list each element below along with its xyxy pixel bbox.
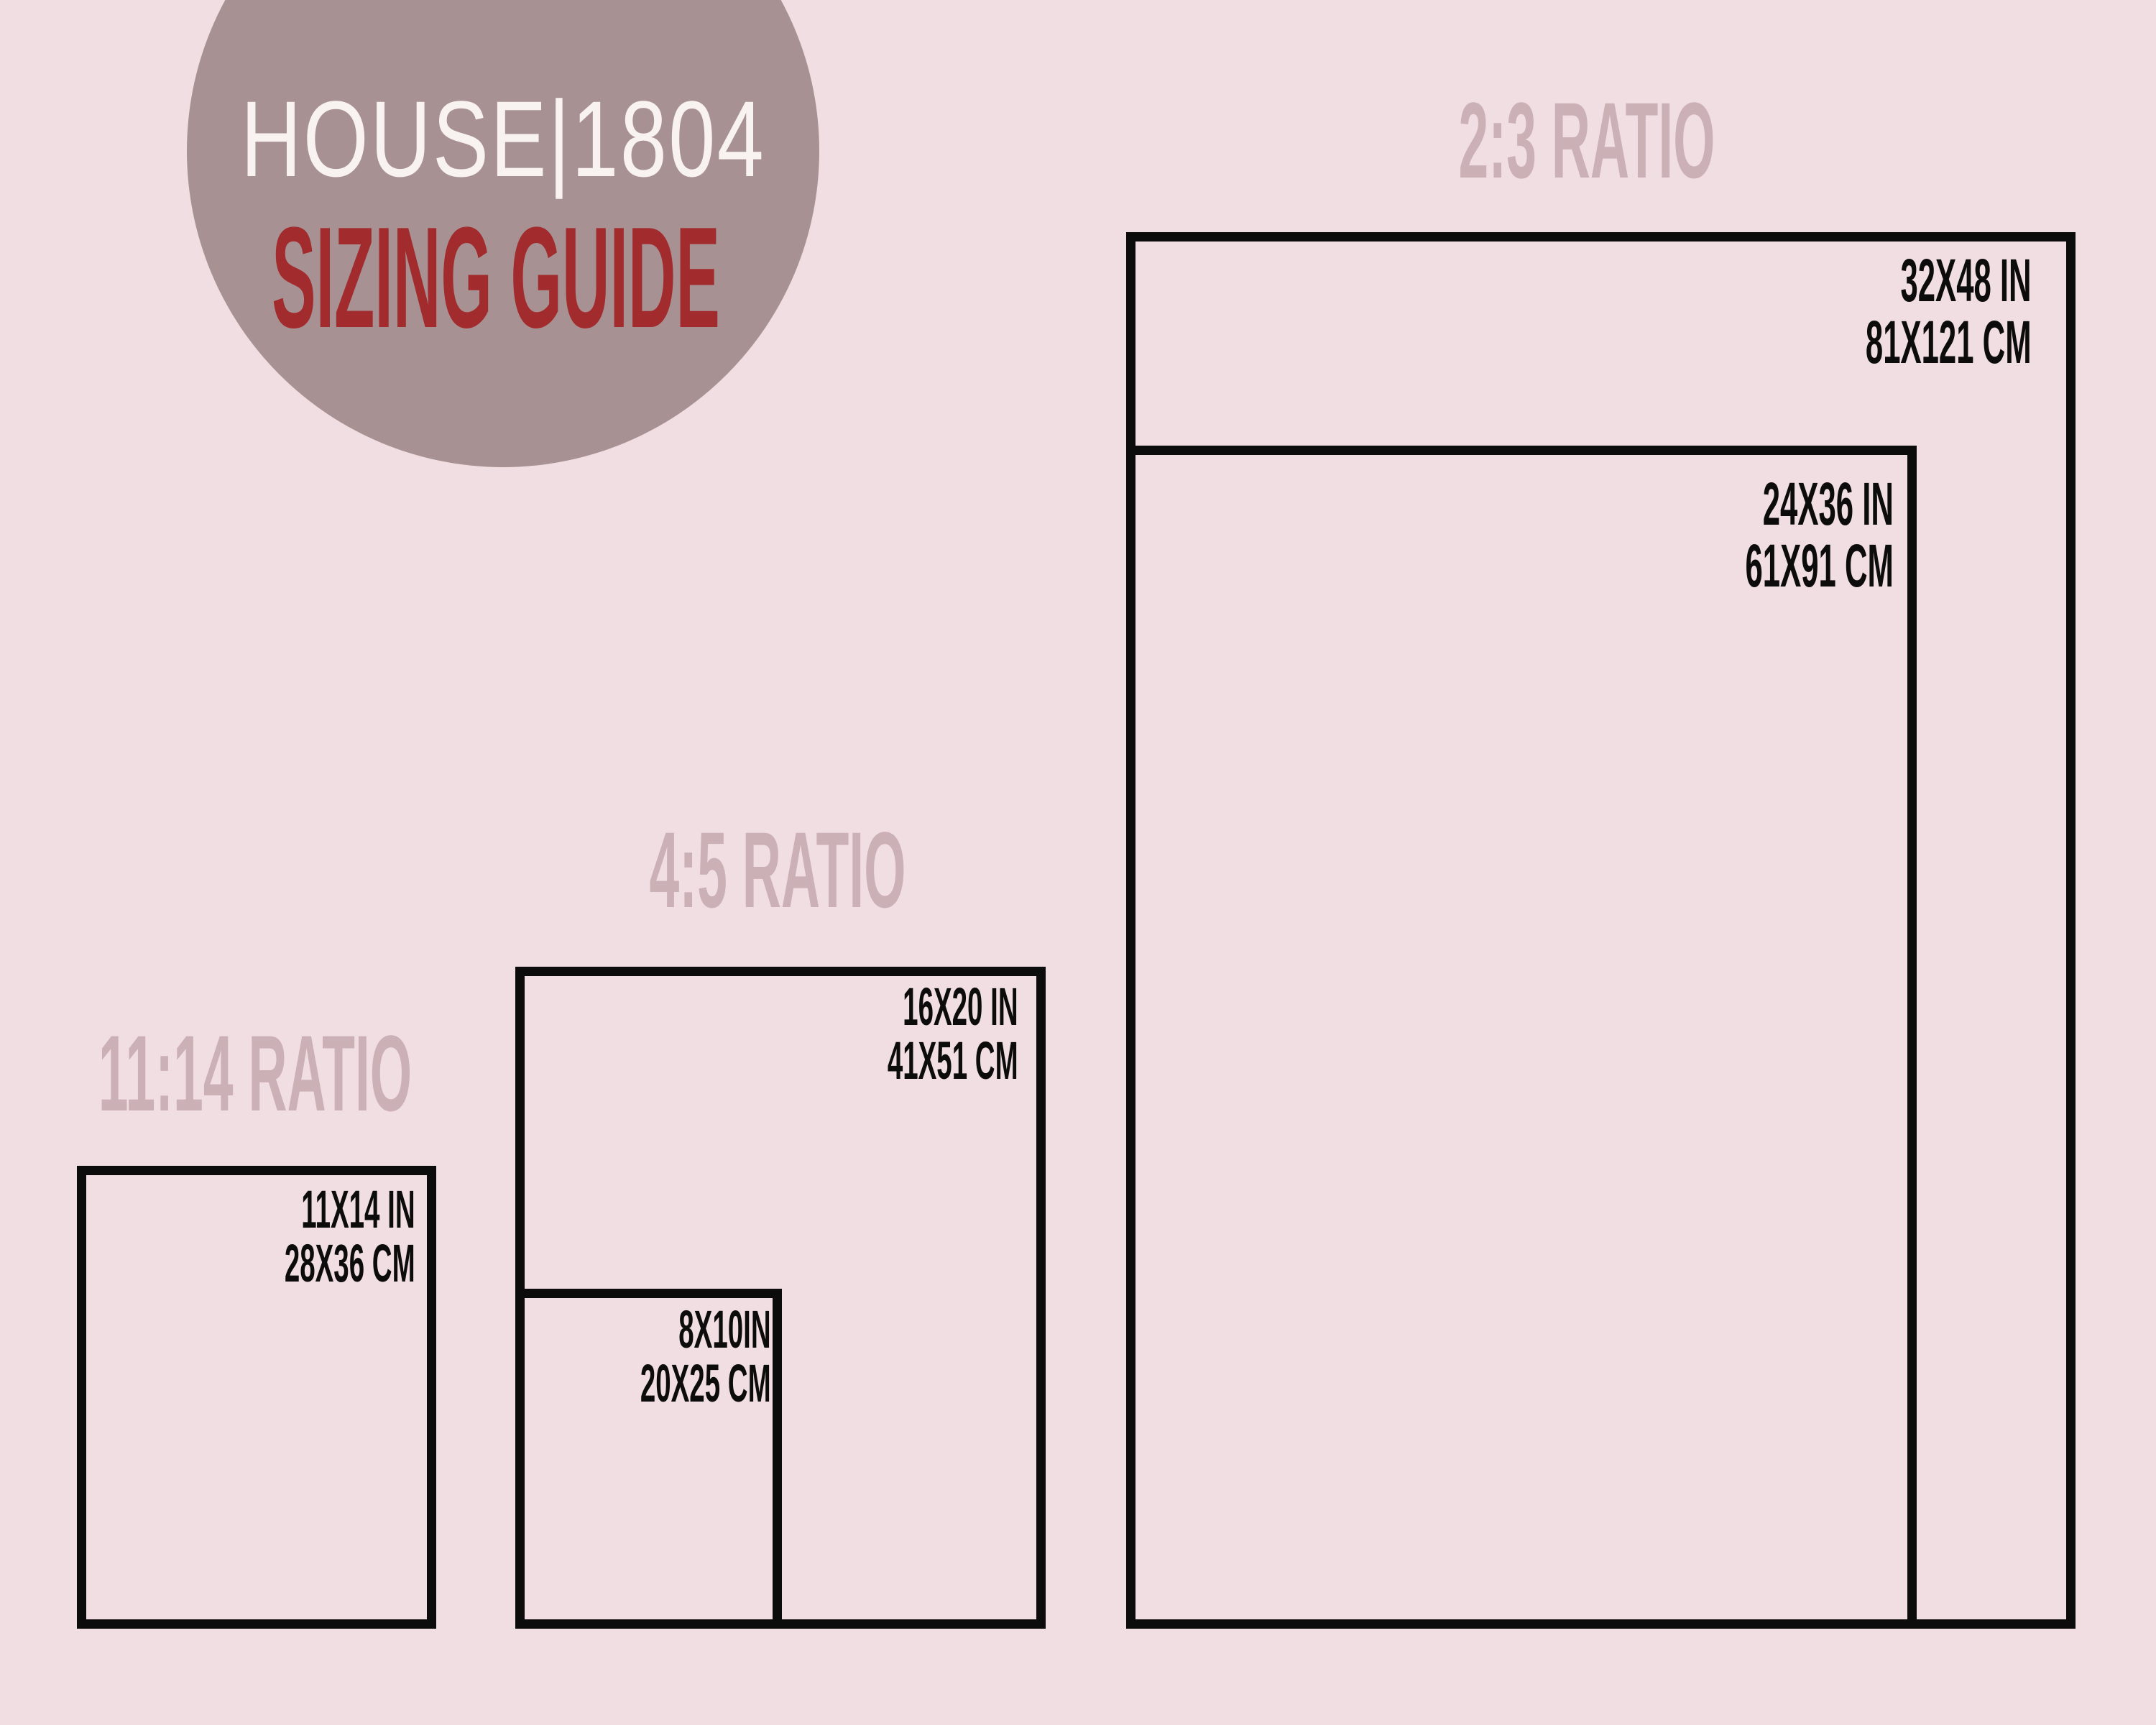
size-inches: 24X36 IN [1746,474,1894,535]
size-label-8x10: 8X10IN 20X25 CM [640,1302,771,1411]
size-cm: 41X51 CM [888,1034,1018,1087]
size-cm: 20X25 CM [640,1356,771,1410]
size-cm: 28X36 CM [285,1236,415,1290]
size-inches: 32X48 IN [1866,250,2032,312]
heading-ratio-2-3: 2:3 RATIO [1459,86,1715,194]
size-label-16x20: 16X20 IN 41X51 CM [888,980,1018,1088]
size-rect-11x14: 11X14 IN 28X36 CM [77,1166,436,1629]
size-label-11x14: 11X14 IN 28X36 CM [285,1182,415,1291]
size-rect-24x36: 24X36 IN 61X91 CM [1126,446,1917,1629]
size-inches: 11X14 IN [285,1182,415,1236]
size-label-32x48: 32X48 IN 81X121 CM [1866,250,2032,373]
size-inches: 16X20 IN [888,980,1018,1034]
sizing-guide-infographic: HOUSE|1804 SIZING GUIDE 2:3 RATIO 4:5 RA… [0,0,2156,1725]
size-cm: 61X91 CM [1746,535,1894,597]
size-rect-8x10: 8X10IN 20X25 CM [515,1289,782,1629]
size-inches: 8X10IN [640,1302,771,1356]
heading-ratio-4-5: 4:5 RATIO [650,816,906,924]
page-title: SIZING GUIDE [272,206,720,350]
size-cm: 81X121 CM [1866,312,2032,374]
brand-name: HOUSE|1804 [241,85,765,193]
size-label-24x36: 24X36 IN 61X91 CM [1746,474,1894,597]
heading-ratio-11-14: 11:14 RATIO [98,1019,412,1127]
